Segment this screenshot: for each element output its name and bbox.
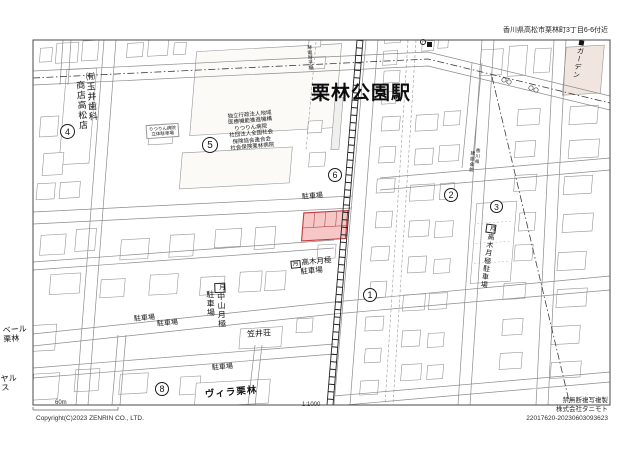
map-graphics (0, 0, 640, 452)
rights-company: 株式会社タニモト (526, 405, 608, 414)
nakayama-parking-label: 月中山月極 駐車場 (205, 283, 228, 329)
marker-1: 1 (363, 288, 377, 302)
rights-notice: 禁無断複写複製 (526, 396, 608, 405)
tamai-shop-label: ㈲玉井歯科 商店高松店 (74, 71, 99, 130)
belle-ritsurin-label: ベール 栗林 (2, 324, 27, 344)
takagi-parking-label-west: 月高木月極 駐車場 (290, 256, 332, 277)
hospital-label: 独立行政法人地域 医療機能推進機構 りつりん病院 社団法人全国社会 保険協会連合… (211, 109, 290, 154)
station-name: 栗林公園駅 (311, 83, 411, 105)
hospital-parking-deck-label: りつりん病院 立体駐車場 (146, 123, 180, 140)
marker-4: 4 (60, 124, 75, 139)
rights-serial: 22017620-20230603093623 (526, 414, 608, 423)
marker-6: 6 (328, 168, 342, 182)
map-canvas: 香川県高松市栗林町3丁目6-6付近 栗林公園駅 琴電琴平線 ㈲玉井歯科 商店高松… (0, 0, 640, 452)
building-icon (578, 40, 584, 46)
map-address: 香川県高松市栗林町3丁目6-6付近 (503, 27, 608, 35)
scale-bar (33, 407, 118, 410)
copyright-text: Copyright(C)2023 ZENRIN CO., LTD. (36, 415, 144, 422)
hospital-south-wing (179, 147, 292, 189)
parking-lot-label: 駐車場 (302, 192, 324, 201)
rights-block: 禁無断複写複製 株式会社タニモト 22017620-20230603093623 (526, 396, 608, 423)
kensetsu-kaikan-label: 香川県 建設会館 (469, 148, 481, 174)
marker-2: 2 (444, 188, 458, 202)
marker-8: 8 (155, 382, 169, 396)
rail-line-label: 琴電琴平線 (305, 45, 312, 70)
building-footprints (10, 12, 610, 417)
royal-label: ヤル ス (0, 373, 17, 392)
scale-ratio: 1:1000 (302, 402, 320, 408)
marker-3: 3 (490, 200, 503, 213)
scale-distance: 60m (55, 400, 67, 406)
poi-square-icon (427, 42, 432, 47)
kasai-so-label: 笠井荘 (247, 328, 272, 339)
poi-ring-icon (420, 39, 426, 45)
monthly-parking-icon: 月 (214, 283, 225, 293)
